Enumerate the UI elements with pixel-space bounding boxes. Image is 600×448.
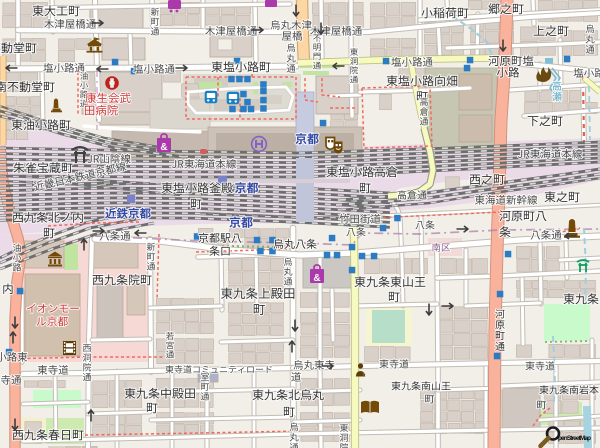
svg-text:&: & (313, 273, 320, 284)
svg-text:penStreetMap: penStreetMap (558, 435, 591, 442)
svg-text:&: & (160, 142, 167, 153)
